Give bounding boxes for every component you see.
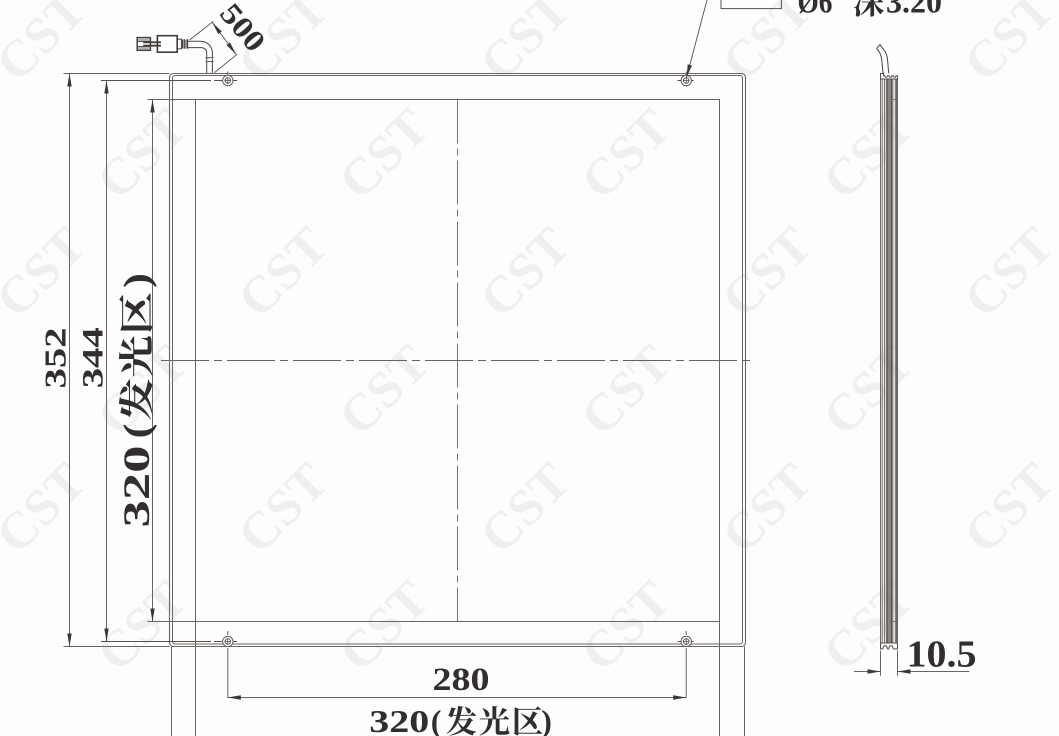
svg-text:Ø6: Ø6: [798, 0, 833, 20]
svg-text:280: 280: [433, 662, 490, 698]
svg-text:CST: CST: [228, 217, 340, 329]
svg-text:CST: CST: [87, 99, 199, 211]
svg-text:CST: CST: [228, 453, 340, 565]
svg-text:3.20: 3.20: [886, 0, 942, 20]
svg-text:CST: CST: [0, 453, 97, 565]
svg-text:CST: CST: [329, 335, 441, 447]
svg-text:CST: CST: [470, 217, 582, 329]
svg-text:CST: CST: [470, 0, 582, 92]
svg-text:CST: CST: [954, 453, 1059, 565]
svg-text:(: (: [117, 424, 158, 439]
svg-text:CST: CST: [712, 453, 824, 565]
svg-text:CST: CST: [571, 571, 683, 683]
svg-text:(: (: [431, 703, 442, 736]
svg-text:CST: CST: [329, 99, 441, 211]
svg-text:CST: CST: [571, 335, 683, 447]
svg-text:344: 344: [78, 327, 110, 388]
svg-text:CST: CST: [470, 453, 582, 565]
svg-text:CST: CST: [571, 99, 683, 211]
svg-text:CST: CST: [813, 335, 925, 447]
svg-text:CST: CST: [954, 0, 1059, 92]
svg-text:352: 352: [38, 328, 73, 389]
svg-text:CST: CST: [0, 0, 97, 92]
svg-text:): ): [541, 703, 552, 736]
svg-text:10.5: 10.5: [907, 633, 977, 675]
svg-text:320: 320: [117, 446, 158, 528]
svg-text:CST: CST: [0, 217, 97, 329]
svg-text:CST: CST: [954, 217, 1059, 329]
svg-text:CST: CST: [712, 217, 824, 329]
svg-text:): ): [117, 273, 158, 288]
svg-text:320: 320: [369, 703, 429, 736]
svg-text:CST: CST: [329, 571, 441, 683]
svg-text:CST: CST: [813, 99, 925, 211]
svg-text:CST: CST: [87, 571, 199, 683]
